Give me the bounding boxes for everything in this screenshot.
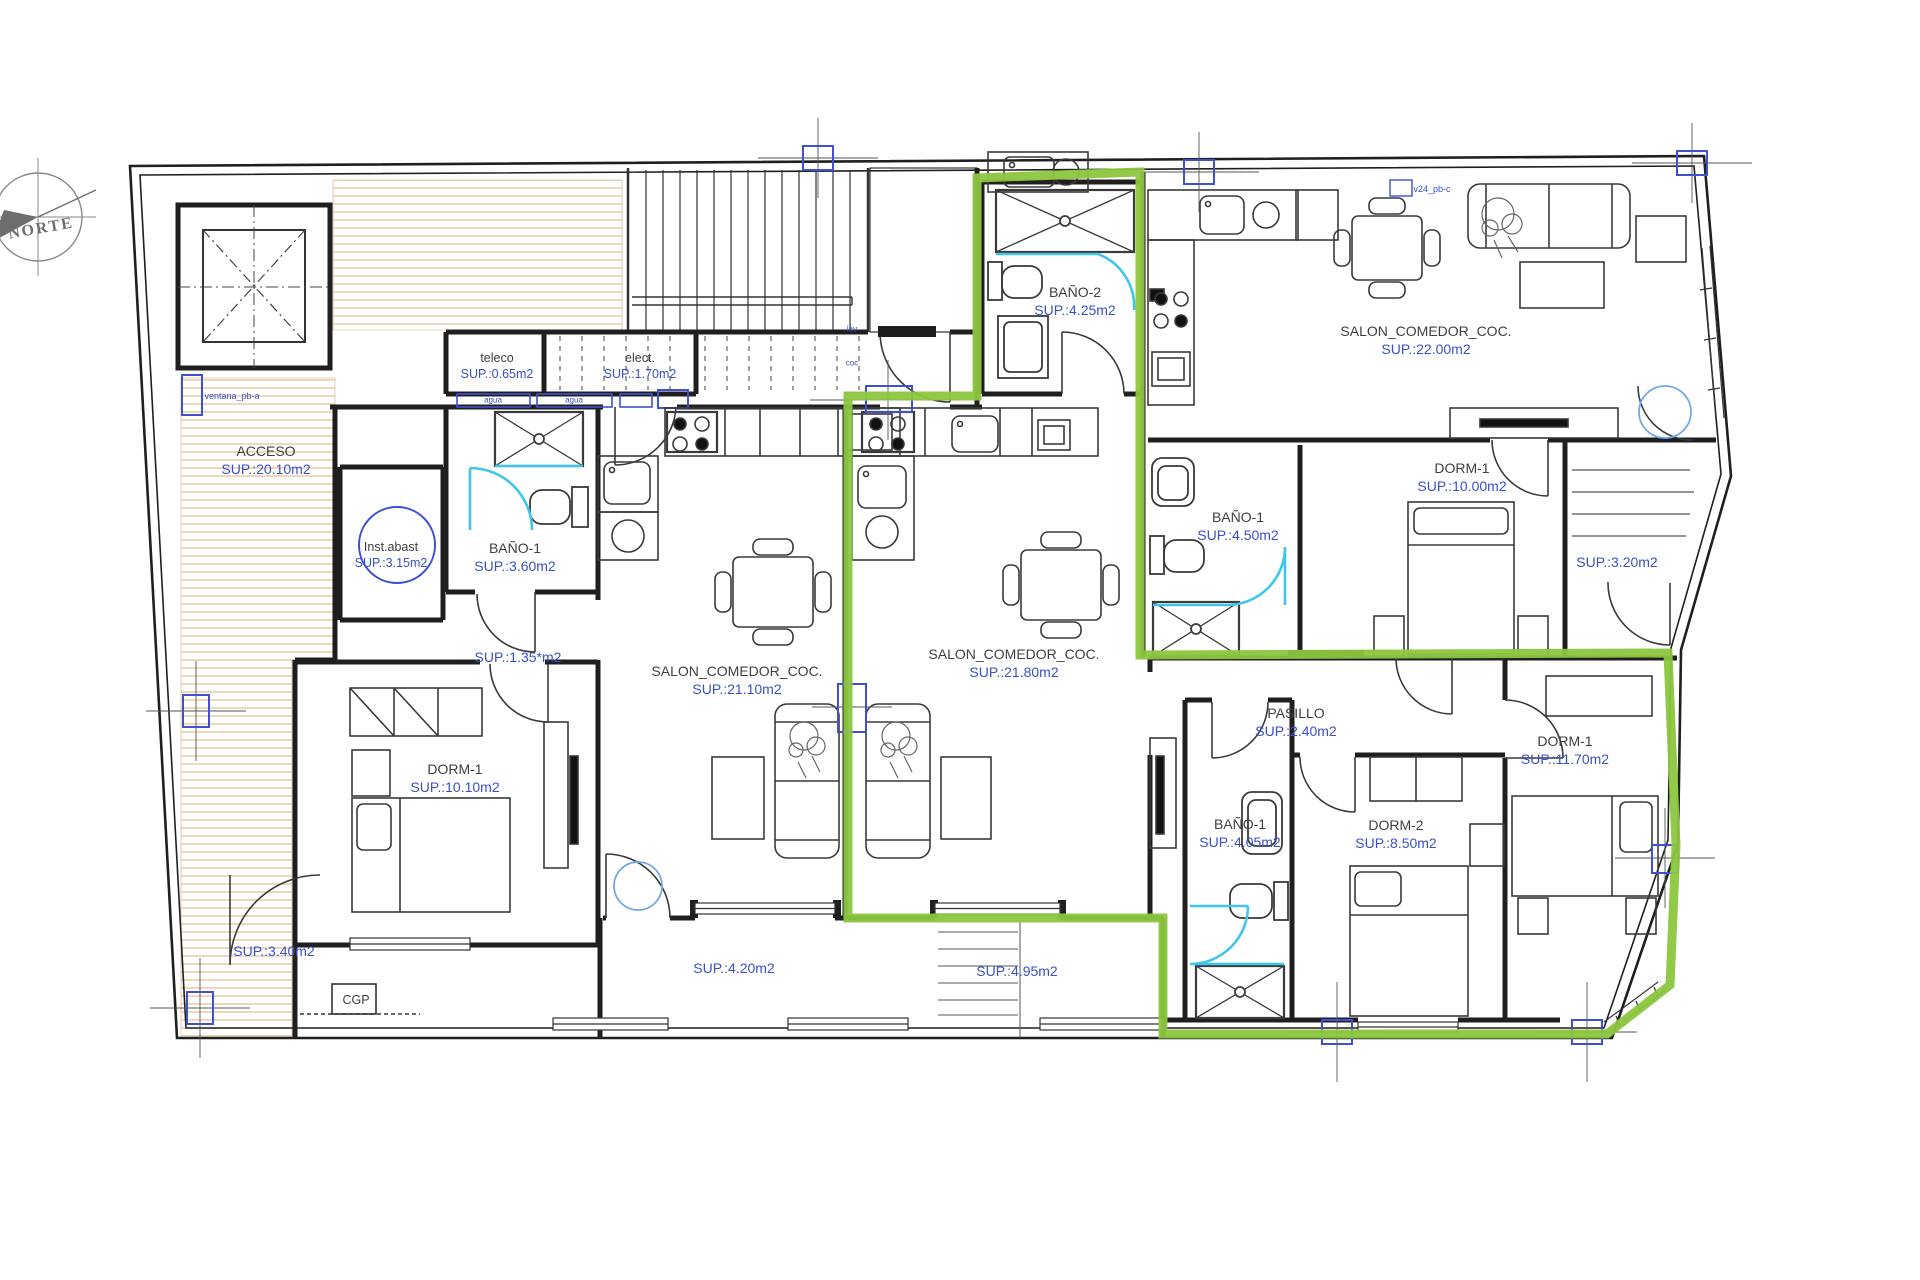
terrace-steps [938,922,1020,1038]
room-label-salon-c: SALON_COMEDOR_COC. SUP.:22.00m2 [1340,322,1511,358]
room-name: ACCESO [221,442,310,460]
meter-label-agua-2: agua [565,396,583,405]
plant-icon-a [789,722,825,778]
access-hatch-area [181,180,622,1036]
room-label-terrace-b: SUP.:4.95m2 [976,962,1057,980]
room-label-cgp: CGP [342,992,369,1008]
stairs [628,168,977,332]
bed-dorm1-b [1512,676,1658,934]
room-label-teleco: teleco SUP.:0.65m2 [461,350,534,382]
room-label-bano1-a: BAÑO-1 SUP.:3.60m2 [474,539,555,575]
elevator [178,205,330,368]
floor-plan-page: NORTE ACCESO SUP.:20.10m2 teleco SUP.:0.… [0,0,1920,1280]
room-label-dorm1-b: DORM-1 SUP.:11.70m2 [1521,732,1609,768]
plant-icon-c [1482,198,1522,258]
room-label-elect: elect. SUP.:1.70m2 [604,350,677,382]
sofa-b [866,704,1176,858]
plumbing-tag-coc: coc [846,359,858,368]
room-label-dorm1-a: DORM-1 SUP.:10.10m2 [410,760,499,796]
kitchen-apartment-b [852,408,1098,560]
room-label-hall-a: SUP.:1.35*m2 [475,648,562,666]
bed-dorm1-a [350,688,510,912]
room-label-dorm2-b: DORM-2 SUP.:8.50m2 [1355,816,1436,852]
room-label-bano1-b: BAÑO-1 SUP.:4.05m2 [1199,815,1280,851]
room-label-bano2-b: BAÑO-2 SUP.:4.25m2 [1034,283,1115,319]
bed-dorm1-c [1374,502,1548,656]
room-label-patio-a: SUP.:3.40m2 [233,942,314,960]
window-tag-top: v24_pb-c [1413,184,1450,194]
plumbing-tag-lav: lav [847,325,857,334]
room-label-terrace-a: SUP.:4.20m2 [693,959,774,977]
floor-plan-drawing [0,0,1920,1280]
dining-table-c [1334,198,1440,298]
room-label-pasillo-b: PASILLO SUP.:2.40m2 [1255,704,1336,740]
room-label-inst-abast: Inst.abast SUP.:3.15m2 [355,539,428,571]
room-label-acceso: ACCESO SUP.:20.10m2 [221,442,310,478]
room-label-salon-a: SALON_COMEDOR_COC. SUP.:21.10m2 [651,662,822,698]
dining-table-b [1003,532,1119,638]
window-tag-left: ventana_pb-a [204,391,259,401]
dining-table-a [715,539,831,645]
bed-dorm2-b [1350,757,1504,1016]
room-label-salon-b: SALON_COMEDOR_COC. SUP.:21.80m2 [928,645,1099,681]
sofa-a [544,704,839,868]
kitchen-apartment-a [598,408,900,560]
meter-label-agua-1: agua [484,396,502,405]
plant-icon-b [881,722,917,778]
room-area: SUP.:20.10m2 [221,460,310,478]
balcony-louvres [1572,470,1694,536]
room-label-bano1-c: BAÑO-1 SUP.:4.50m2 [1197,508,1278,544]
compass-icon [0,158,96,276]
room-label-dorm1-c: DORM-1 SUP.:10.00m2 [1417,459,1506,495]
room-label-balcony-c: SUP.:3.20m2 [1576,553,1657,571]
